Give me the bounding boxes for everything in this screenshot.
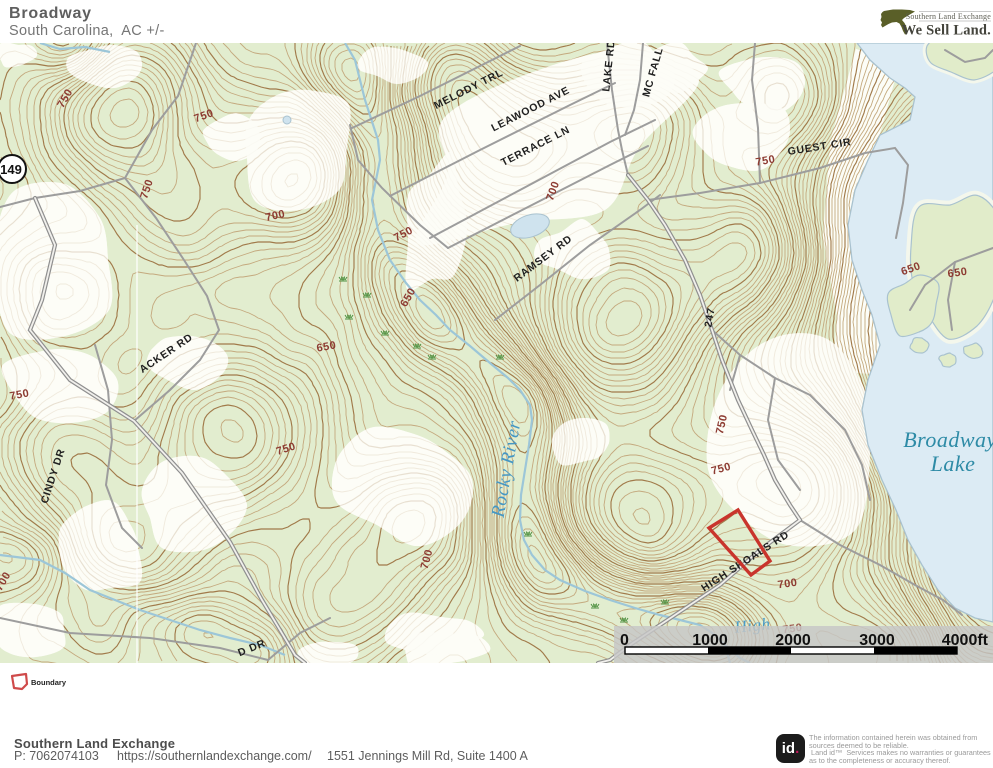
svg-text:Southern Land Exchange: Southern Land Exchange xyxy=(906,12,992,21)
svg-text:149: 149 xyxy=(0,162,22,177)
svg-text:Broadway: Broadway xyxy=(903,427,993,452)
svg-text:Lake: Lake xyxy=(930,451,976,476)
svg-text:We Sell Land.: We Sell Land. xyxy=(902,23,991,39)
